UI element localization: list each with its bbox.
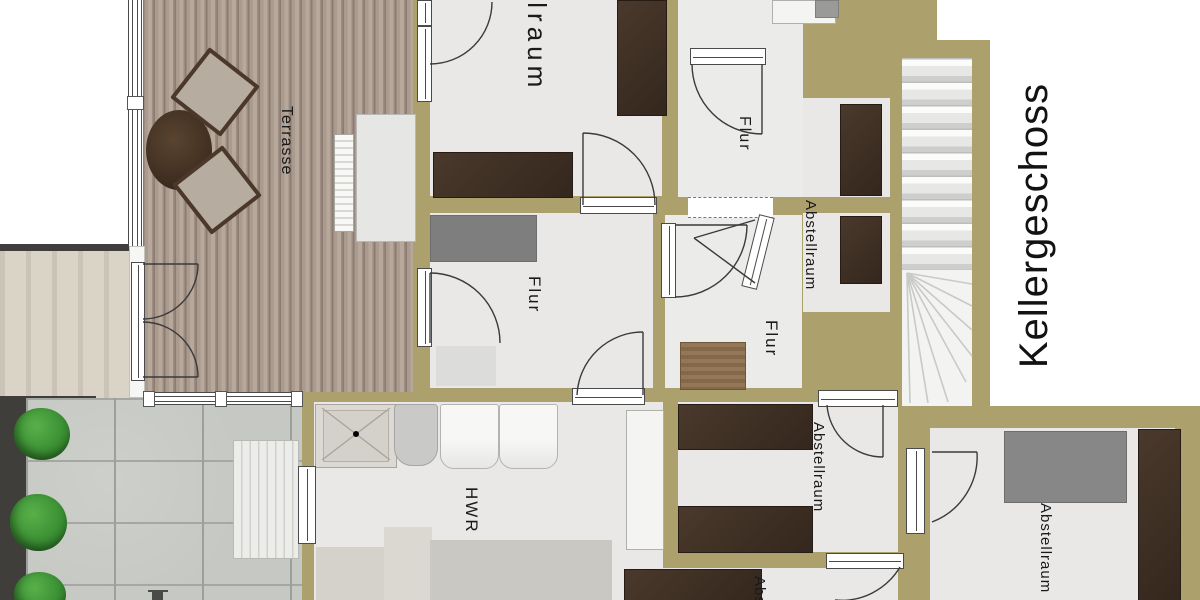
sideboard-hall-center: [430, 215, 537, 262]
cabinet-storage-right: [1004, 431, 1127, 503]
door-frame-hall-terrace: [417, 268, 432, 347]
window-hwr-left: [298, 466, 316, 544]
water-heater: [394, 404, 438, 466]
label-terrace: Terrasse: [277, 106, 295, 175]
shelf-storage-mid-1: [678, 404, 813, 450]
bush-plant-2: [10, 494, 67, 551]
floor-title-text: Kellergeschoss: [1013, 82, 1058, 367]
door-frame-storage-top-left: [417, 0, 432, 26]
french-door-frame-terrace: [131, 262, 145, 381]
shelf-storage-mid-2: [678, 506, 813, 553]
hwr-counter-left: [316, 547, 384, 600]
label-hall-top: Flur: [735, 116, 753, 152]
washing-machine: [440, 404, 499, 469]
oak-chest-hall-mid: [680, 342, 746, 390]
label-hall-mid: Flur: [761, 320, 781, 357]
label-storage-bottom-partial: Abstellraum: [751, 576, 768, 600]
railing-post: [127, 96, 144, 110]
floor-plan: Terrasse Abstellraum Flur Flur Flur Abst…: [0, 0, 1200, 600]
light-well-grate: [233, 440, 299, 559]
room-hall-top: [678, 0, 803, 197]
floor-mat-hall: [436, 346, 496, 386]
terrace-railing-left: [128, 0, 142, 246]
label-storage-bottom-mid: Abstellraum: [810, 422, 827, 512]
door-frame-hall-bottom: [572, 388, 645, 405]
door-frame-hall-mid-left: [661, 223, 676, 298]
tall-cabinet-hwr: [626, 410, 664, 550]
sideboard-storage-top: [433, 152, 573, 198]
window-storage-mid-right: [906, 448, 925, 534]
sink-bowl: [323, 410, 389, 462]
door-frame-storage-mid-bottom: [826, 553, 904, 569]
floor-title: Kellergeschoss: [993, 35, 1077, 415]
label-hall-center: Flur: [524, 276, 544, 313]
shelf-storage-partial: [624, 569, 762, 600]
terrace-bench: [334, 134, 354, 232]
wardrobe-storage-top: [617, 0, 667, 116]
shelf-storage-small-bottom: [840, 216, 882, 284]
door-frame-storage-mid-top: [818, 390, 898, 407]
utility-sink: [315, 404, 397, 468]
bush-plant-1: [14, 408, 70, 460]
window-storage-top-left: [417, 26, 432, 102]
railing-post: [215, 391, 227, 407]
terrace-dining-table: [356, 114, 416, 242]
label-storage-top: Abstellraum: [521, 0, 552, 92]
door-frame-hall-top: [690, 48, 766, 65]
label-storage-bottom-right: Abstellraum: [1037, 503, 1054, 593]
staircase-winder: [902, 270, 972, 406]
railing-post: [291, 391, 303, 407]
railing-post: [143, 391, 155, 407]
label-utility: HWR: [461, 487, 481, 534]
shelf-storage-small-top: [840, 104, 882, 196]
hwr-appliance: [384, 527, 432, 600]
label-storage-mid: Abstellraum: [802, 200, 819, 290]
hwr-counter-bottom: [430, 540, 612, 600]
driveway-ramp: [0, 251, 132, 398]
niche-device: [815, 0, 839, 18]
dryer: [499, 404, 558, 469]
shelf-storage-right: [1138, 429, 1181, 600]
curb-edge-top: [0, 244, 137, 251]
staircase-steps: [902, 58, 972, 270]
door-frame-storage-hall: [580, 197, 657, 214]
